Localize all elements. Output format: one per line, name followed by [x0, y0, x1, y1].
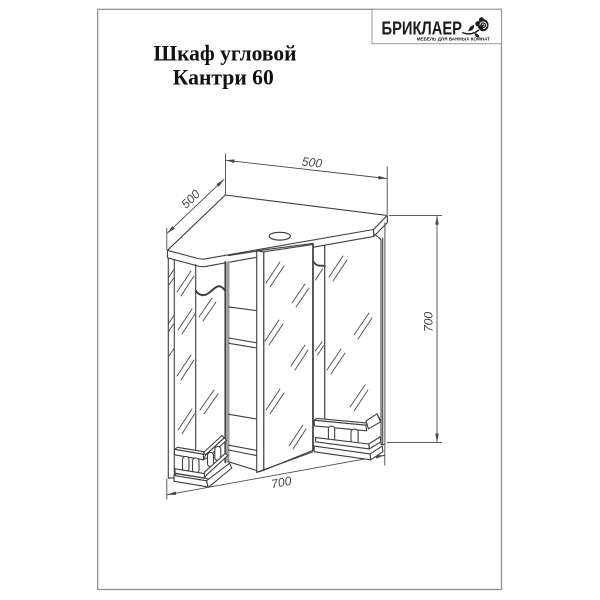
svg-text:МЕБЕЛЬ ДЛЯ ВАННЫХ КОМНАТ: МЕБЕЛЬ ДЛЯ ВАННЫХ КОМНАТ: [417, 37, 491, 42]
svg-text:500: 500: [301, 154, 323, 170]
svg-text:700: 700: [270, 474, 293, 491]
svg-text:500: 500: [179, 187, 204, 211]
svg-text:700: 700: [422, 312, 436, 333]
svg-text:Шкаф угловой: Шкаф угловой: [154, 41, 297, 66]
svg-text:Кантри 60: Кантри 60: [173, 65, 274, 90]
